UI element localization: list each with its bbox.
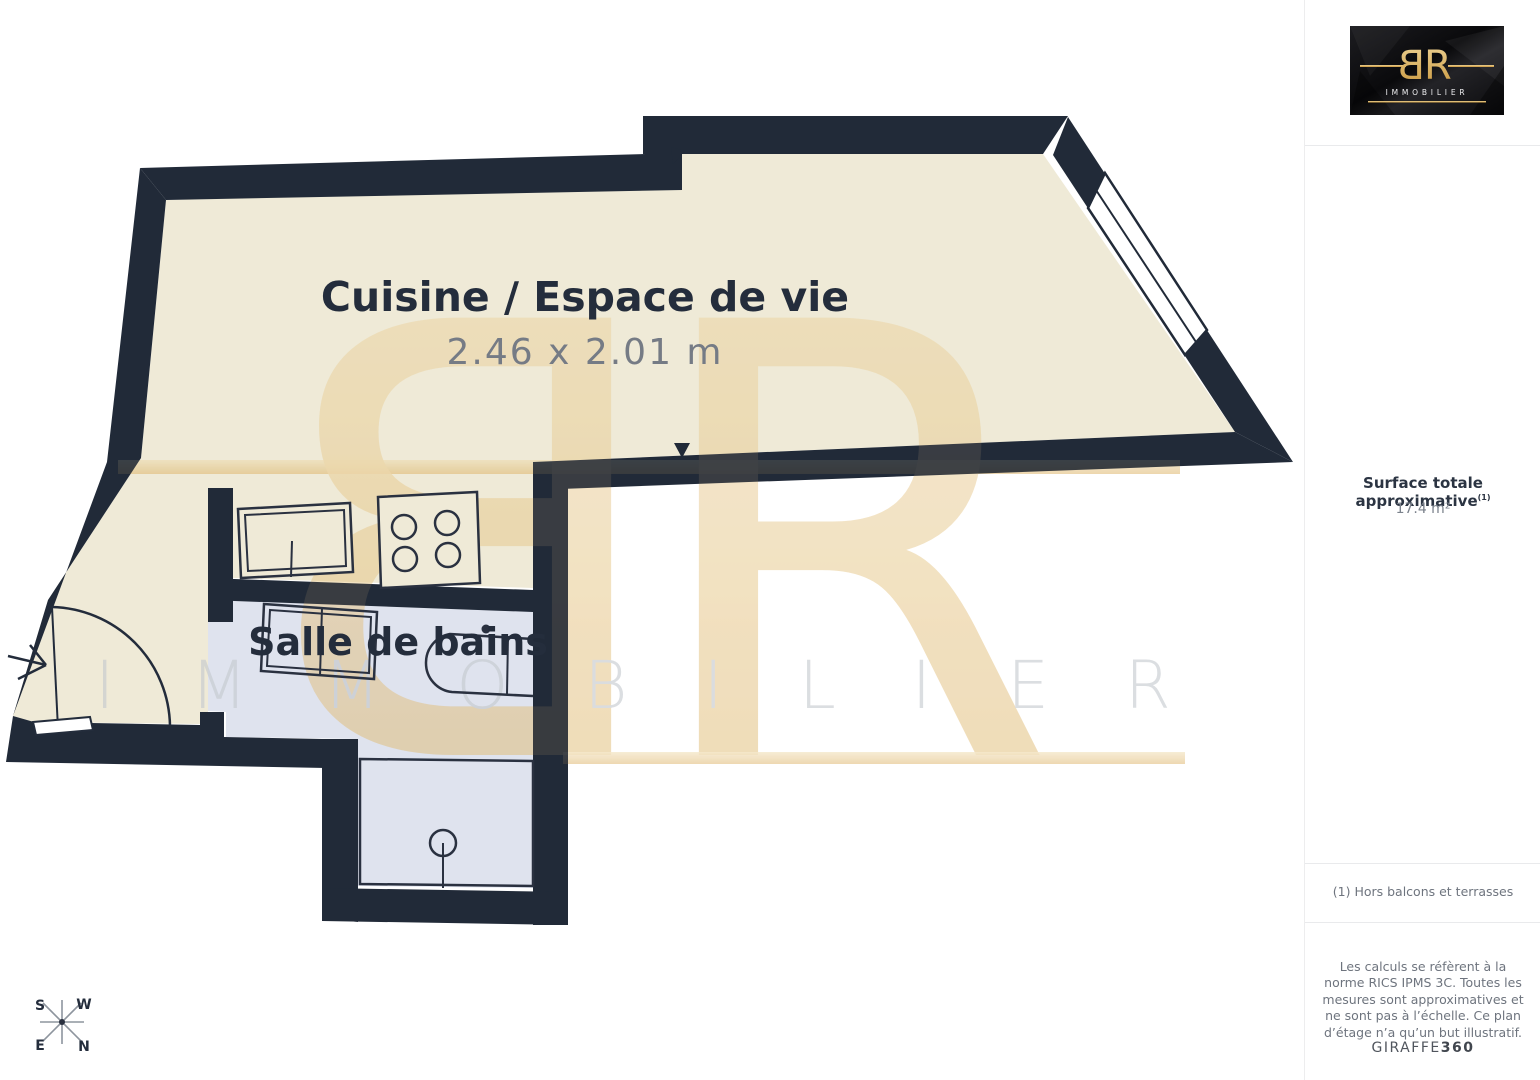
room-dimensions-kitchen: 2.46 x 2.01 m [446,332,723,373]
stove [378,492,480,588]
floorplan-page: B R IMMOBILIER [0,0,1540,1080]
giraffe-suffix: 360 [1441,1040,1475,1056]
legal-disclaimer: Les calculs se réfèrent à la norme RICS … [1318,959,1528,1042]
compass-s: S [35,998,45,1014]
sink-faucet [291,541,292,577]
compass-n: N [78,1039,90,1055]
floor-plan: B R IMMOBILIER [0,0,1310,1080]
agency-logo: B R IMMOBILIER [1350,26,1504,115]
divider [1305,922,1540,923]
kitchen-sink [238,503,353,578]
wall-hall-bar [208,488,233,622]
logo-monogram-r: R [1424,43,1452,89]
logo-brand-text: IMMOBILIER [1386,88,1469,97]
wall-top-right [643,116,1068,154]
compass-e: E [35,1038,45,1054]
room-label-kitchen: Cuisine / Espace de vie [321,273,849,321]
info-sidebar: B R IMMOBILIER Surface totale approximat… [1304,0,1540,1080]
divider [1305,145,1540,146]
logo-monogram-b: B [1398,43,1425,89]
giraffe-name: GIRAFFE [1372,1040,1441,1056]
giraffe360-brand: GIRAFFE360 [1305,1040,1540,1056]
room-label-bathroom: Salle de bains [248,620,548,664]
compass-w: W [76,997,91,1013]
surface-total-value: 17.4 m² [1305,501,1540,517]
footnote-balconies: (1) Hors balcons et terrasses [1305,884,1540,899]
compass: S W E N [35,997,92,1055]
divider [1305,863,1540,864]
